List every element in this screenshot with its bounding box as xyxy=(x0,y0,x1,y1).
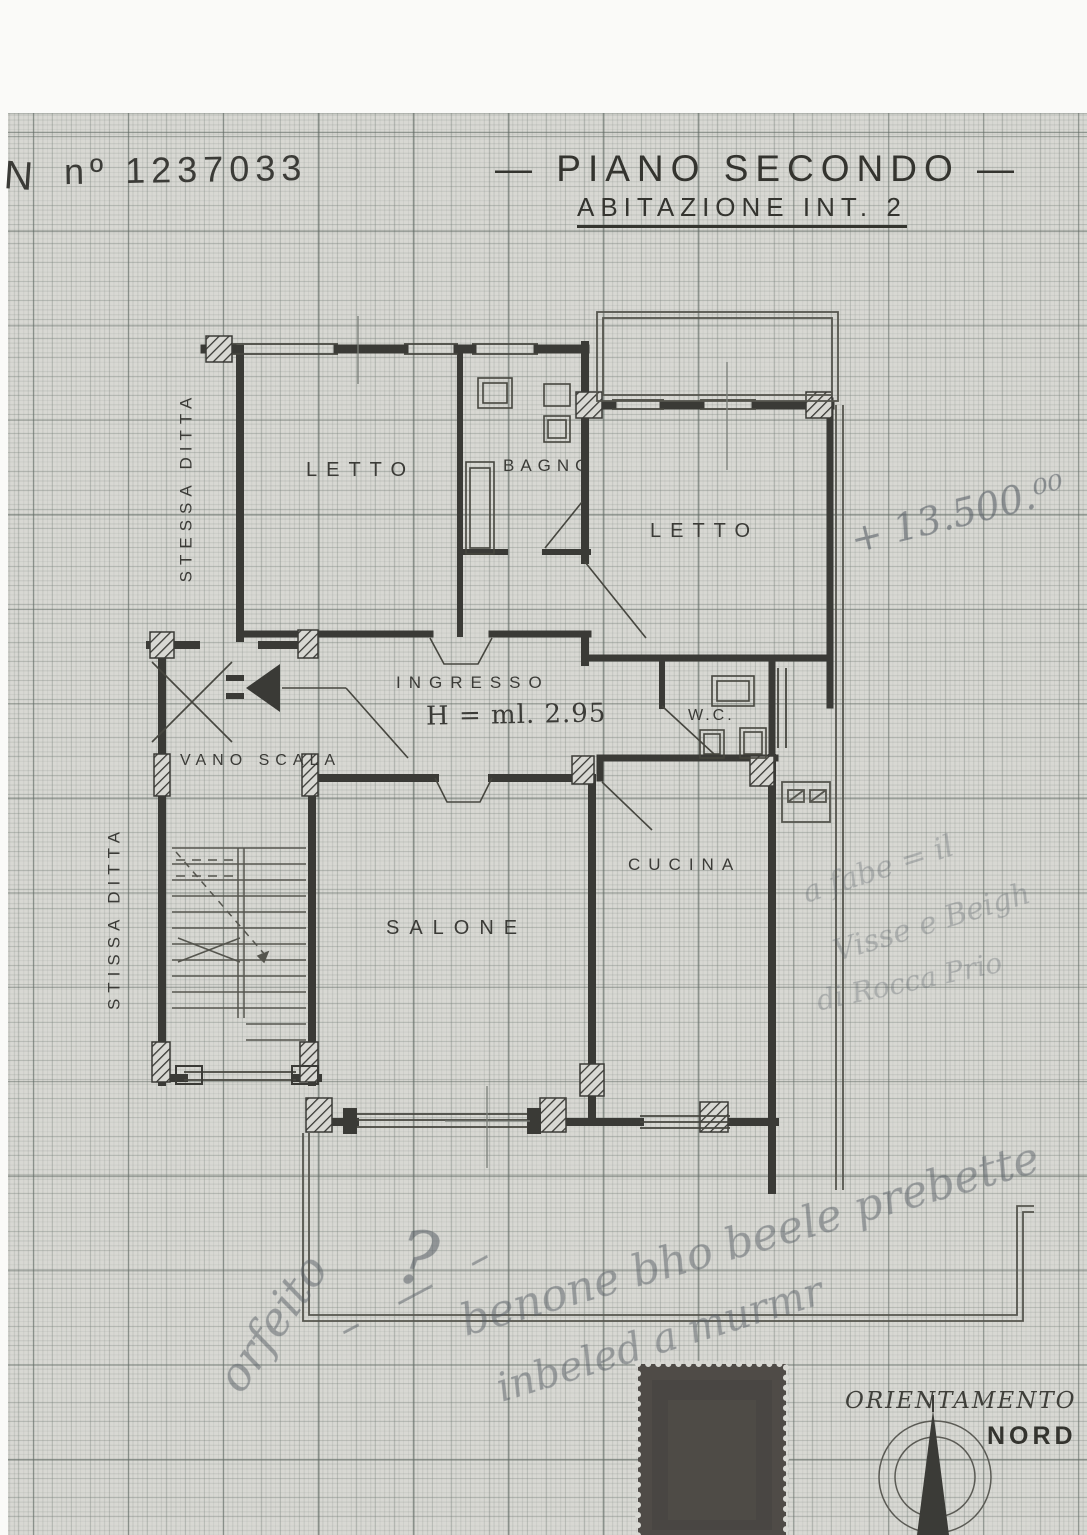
dimension-ticks xyxy=(358,316,727,1168)
sheet-number: nº 1237033 xyxy=(64,150,308,190)
margin-label-stessa-ditta-upper: STESSA DITTA xyxy=(178,392,195,583)
north-needle xyxy=(917,1410,949,1535)
room-label-ingresso: INGRESSO xyxy=(396,674,550,691)
room-label-vano-scala: VANO SCALA xyxy=(180,753,341,769)
room-label-wc: W.C. xyxy=(688,708,735,724)
scanned-floor-plan-sheet: { "document": { "sheet_prefix": "N", "sh… xyxy=(0,0,1087,1535)
room-label-letto-2: LETTO xyxy=(650,521,759,541)
page-title: — PIANO SECONDO — xyxy=(495,150,1021,187)
room-label-letto-1: LETTO xyxy=(306,460,415,480)
sheet-prefix: N xyxy=(3,155,35,197)
compass-rose xyxy=(879,1395,991,1535)
hatched-piers xyxy=(150,336,832,1132)
ceiling-height-note: H = ml. 2.95 xyxy=(426,700,607,729)
revenue-stamp xyxy=(638,1364,786,1535)
margin-label-stessa-ditta-lower: STISSA DITTA xyxy=(106,826,123,1010)
north-label: NORD xyxy=(987,1424,1077,1449)
page-subtitle: ABITAZIONE INT. 2 xyxy=(577,194,907,228)
entry-door-symbol xyxy=(226,664,280,712)
room-label-bagno: BAGNO xyxy=(503,457,594,474)
staircase xyxy=(172,848,306,1040)
room-label-salone: SALONE xyxy=(386,918,527,938)
room-label-cucina: CUCINA xyxy=(628,856,741,873)
orientation-title: ORIENTAMENTO xyxy=(845,1390,1077,1413)
